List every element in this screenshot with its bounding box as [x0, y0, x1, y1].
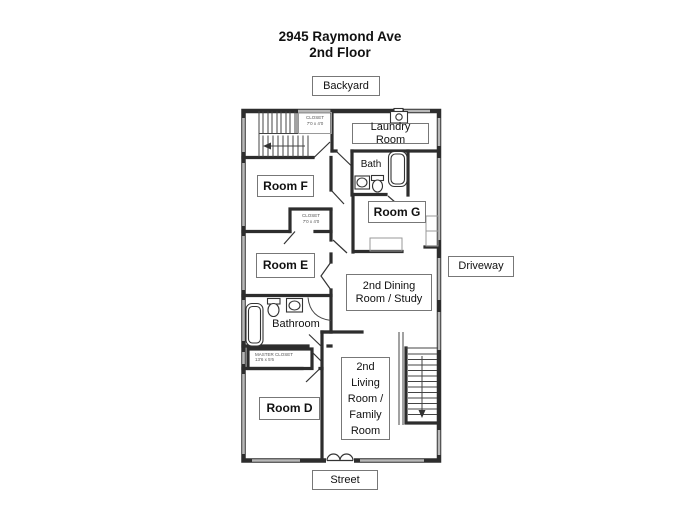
driveway-label: Driveway	[448, 256, 514, 277]
room-f-label: Room F	[257, 175, 314, 197]
laundry-door	[336, 151, 351, 166]
bathroom-tub-inner	[249, 307, 261, 344]
room-g-bay-lower	[426, 231, 438, 246]
hall-closet-label: CLOSET 7'0 x 4'0	[293, 213, 329, 224]
bath-sink-basin	[357, 178, 367, 187]
hall-closet-door	[284, 232, 295, 245]
floor-plan-page: 2945 Raymond Ave 2nd Floor	[0, 0, 680, 510]
living-family-label: 2nd Living Room / Family Room	[341, 357, 390, 440]
dining-study-label: 2nd Dining Room / Study	[346, 274, 432, 311]
bathroom-toilet-icon	[268, 304, 279, 317]
backyard-label: Backyard	[312, 76, 380, 96]
room-d-label: Room D	[259, 397, 320, 420]
bathroom-door	[309, 335, 322, 348]
street-label: Street	[312, 470, 378, 490]
stairs-upper-treads	[263, 112, 295, 134]
room-g-label: Room G	[368, 201, 426, 223]
stair-closet-label: CLOSET 7'0 x 4'0	[300, 115, 330, 126]
hall-to-dining-door	[333, 240, 347, 253]
room-f-door	[331, 190, 344, 204]
bathroom-sink-basin	[289, 301, 300, 310]
bath-toilet-icon	[373, 180, 383, 192]
room-e-bifold-door	[321, 262, 331, 290]
room-d-door	[306, 369, 320, 383]
room-g-builtin	[370, 238, 402, 251]
laundry-room-label: Laundry Room	[352, 123, 429, 144]
stair-hall-door	[314, 142, 330, 158]
stairs-up-arrowhead	[263, 143, 271, 150]
washer-door-icon	[396, 114, 402, 120]
room-g-bay-upper	[426, 216, 438, 231]
room-e-label: Room E	[256, 253, 315, 278]
master-closet-label: MASTER CLOSET 13'6 x 5'6	[252, 352, 313, 363]
stair-rail-lines	[399, 332, 403, 425]
bathroom-label: Bathroom	[266, 316, 326, 331]
bath-tub-inner	[391, 154, 405, 184]
bath-label: Bath	[354, 157, 388, 171]
